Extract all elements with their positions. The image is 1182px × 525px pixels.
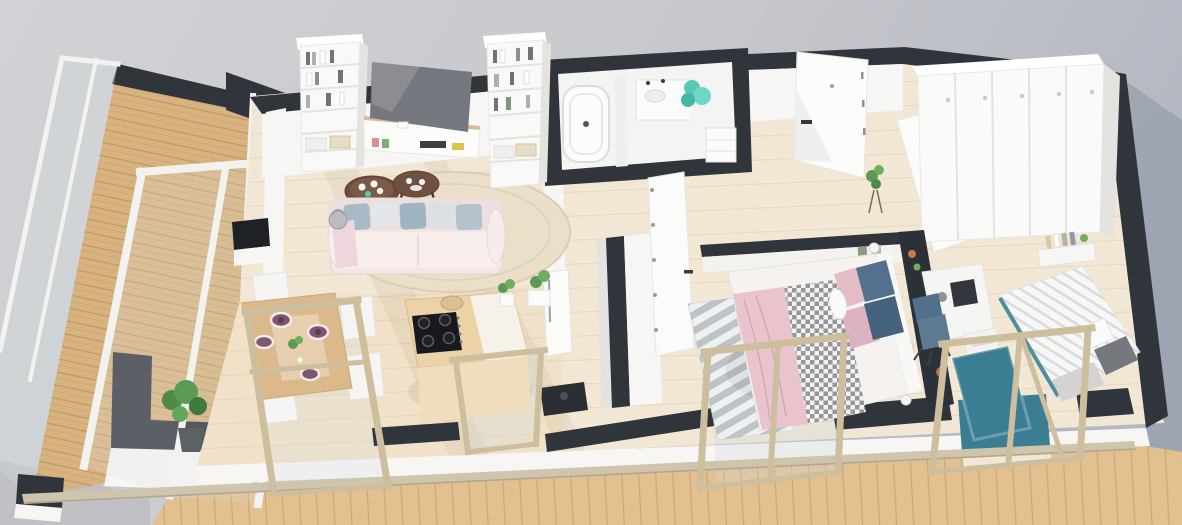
basket <box>329 210 347 229</box>
door-handle <box>684 270 693 274</box>
sofa <box>328 198 505 274</box>
burner <box>423 336 434 347</box>
burner <box>440 315 451 326</box>
sofa-pillow <box>371 201 398 228</box>
bookcase <box>296 34 368 172</box>
remote <box>398 122 408 128</box>
floorplan-render <box>0 0 1182 525</box>
bathtub-drain <box>583 121 589 127</box>
floorplan-canvas <box>0 0 1182 525</box>
wardrobe-front <box>918 64 1104 242</box>
shelf-decor <box>908 250 916 258</box>
sofa-pillow <box>399 202 426 229</box>
bedside-lamp <box>869 243 879 253</box>
bookcase <box>483 32 551 188</box>
bathroom <box>541 48 752 186</box>
plate <box>255 336 273 348</box>
tap <box>646 81 650 85</box>
wardrobe-knob <box>983 96 987 100</box>
tap <box>661 79 665 83</box>
tv-unit <box>364 62 480 158</box>
plant-pot <box>690 110 704 128</box>
wardrobe-knob <box>1057 92 1061 96</box>
wicker-basket <box>441 296 463 310</box>
sink <box>645 90 665 102</box>
burner <box>419 318 430 329</box>
wardrobe <box>912 54 1120 242</box>
sofa-pillow <box>456 204 483 231</box>
shelf-decor <box>914 264 921 271</box>
black-console-top <box>232 218 270 250</box>
plant-pot <box>178 428 204 452</box>
wardrobe-knob <box>1090 90 1094 94</box>
entrance-door-handle <box>801 120 812 124</box>
fridge <box>543 270 572 356</box>
monitor <box>950 279 978 307</box>
burner <box>444 333 455 344</box>
sofa-armrest <box>487 209 505 263</box>
bedside-lamp <box>901 395 911 405</box>
shelf-plant <box>1080 234 1088 242</box>
bathroom-partition <box>614 75 628 167</box>
wardrobe-knob <box>946 98 950 102</box>
sofa-pillow <box>427 201 455 229</box>
gas-cooktop <box>412 312 462 354</box>
peephole <box>830 84 834 88</box>
bath-shelf <box>706 128 736 162</box>
wardrobe-knob <box>1020 94 1024 98</box>
